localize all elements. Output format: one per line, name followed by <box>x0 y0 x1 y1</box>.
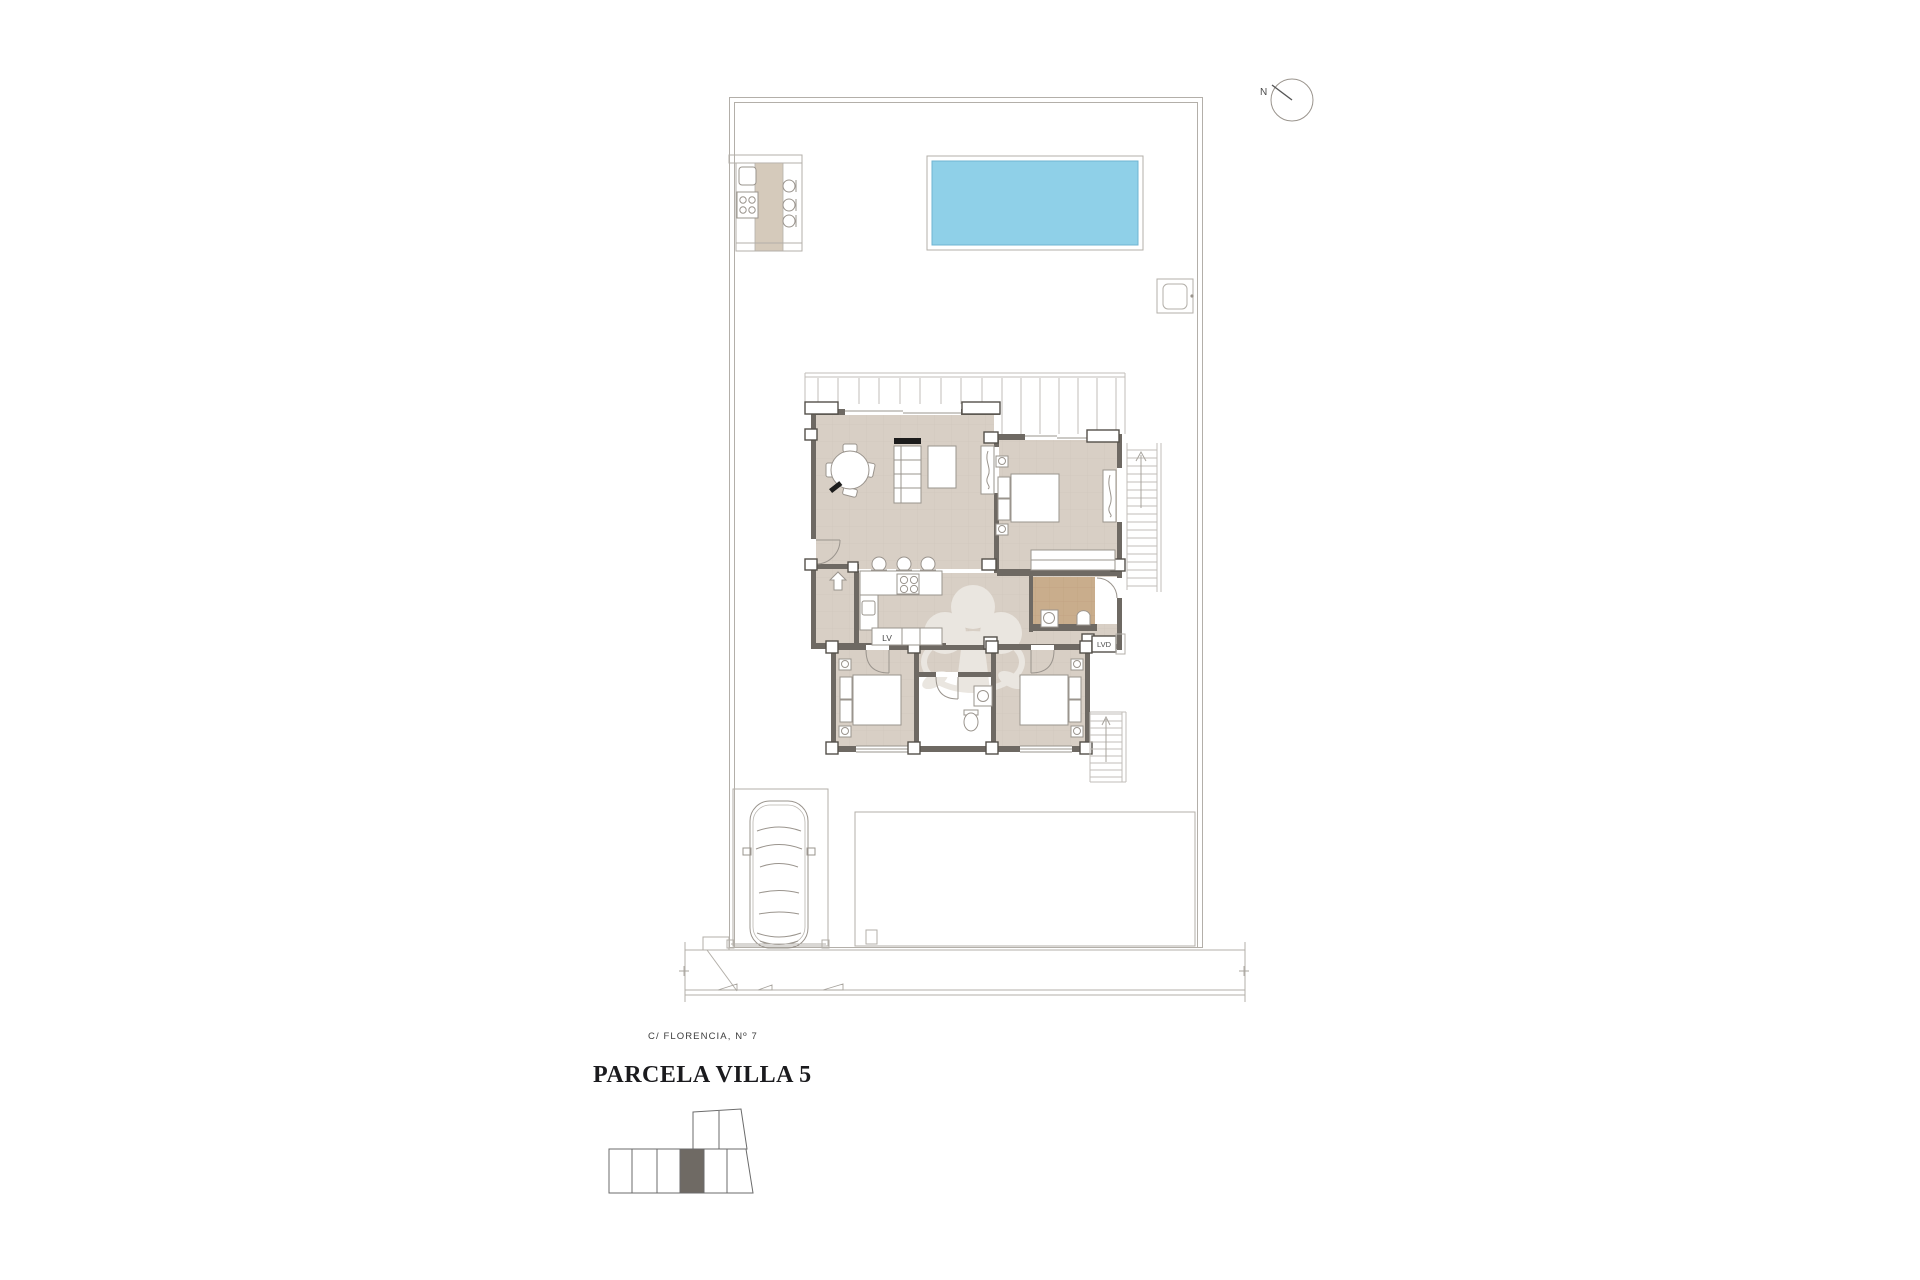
interior-stairs <box>1127 443 1161 592</box>
north-needle-icon <box>1272 85 1292 100</box>
toilet-icon <box>964 713 978 731</box>
street-address-label: C/ FLORENCIA, Nº 7 <box>648 1031 758 1042</box>
fence-hatch-icons <box>718 984 843 990</box>
pergola-slats-right <box>1002 378 1116 436</box>
parking-bay <box>733 789 828 946</box>
hob-icon <box>737 192 758 218</box>
exterior-stairs <box>1090 712 1126 782</box>
car-icon <box>743 801 815 948</box>
toilet-icon <box>1077 611 1090 625</box>
north-indicator: N <box>1260 79 1313 121</box>
kitchen-island-icon <box>860 557 942 595</box>
plan-drawing: N <box>0 0 1920 1280</box>
counter-strip <box>755 163 783 251</box>
swimming-pool <box>927 156 1143 250</box>
sink-icon <box>739 167 756 185</box>
street-sidewalk <box>679 930 1249 1002</box>
pool-water <box>932 161 1138 245</box>
stool-icons <box>783 180 796 227</box>
floor-plan-canvas: N <box>0 0 1920 1280</box>
tv-icon <box>894 438 921 444</box>
dishwasher-label: LV <box>882 633 892 643</box>
north-label: N <box>1260 87 1267 98</box>
rug-icon <box>928 446 956 488</box>
gate-post <box>866 930 877 944</box>
stairs-up-arrow-icon <box>1136 452 1146 508</box>
stairs-up-arrow-icon <box>1102 717 1110 762</box>
gate-post <box>703 937 729 950</box>
gate-swing-line <box>707 950 737 991</box>
pool-equipment-box <box>1157 279 1194 313</box>
site-key-map <box>609 1109 753 1193</box>
patio-terrace <box>855 812 1195 946</box>
laundry-label: LVD <box>1097 640 1112 649</box>
pergola-slats-left <box>818 378 982 404</box>
plan-title: PARCELA VILLA 5 <box>593 1062 812 1089</box>
highlighted-villa-cell <box>680 1149 704 1193</box>
sofa-icon <box>894 446 921 503</box>
survey-cross-icon <box>679 966 1249 976</box>
outdoor-kitchen <box>729 155 802 251</box>
wardrobe-icon <box>1031 550 1115 570</box>
